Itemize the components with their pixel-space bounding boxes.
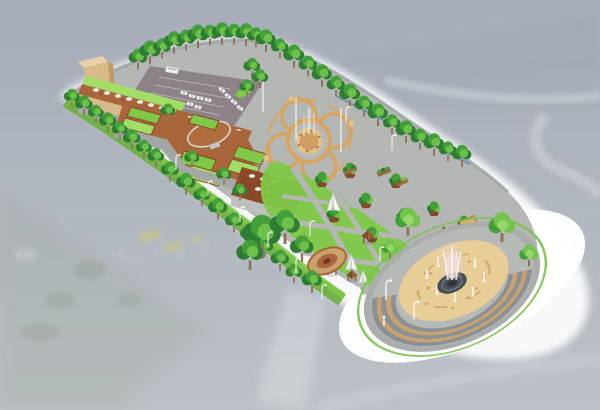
umbrella <box>104 91 110 95</box>
architectural-rendering <box>0 0 600 410</box>
umbrella <box>137 100 143 104</box>
umbrella <box>148 103 154 107</box>
umbrella <box>126 97 132 101</box>
umbrella <box>249 174 255 178</box>
umbrella <box>115 94 121 98</box>
umbrella <box>93 88 99 92</box>
umbrella <box>255 187 261 191</box>
rendering-canvas <box>0 0 600 410</box>
